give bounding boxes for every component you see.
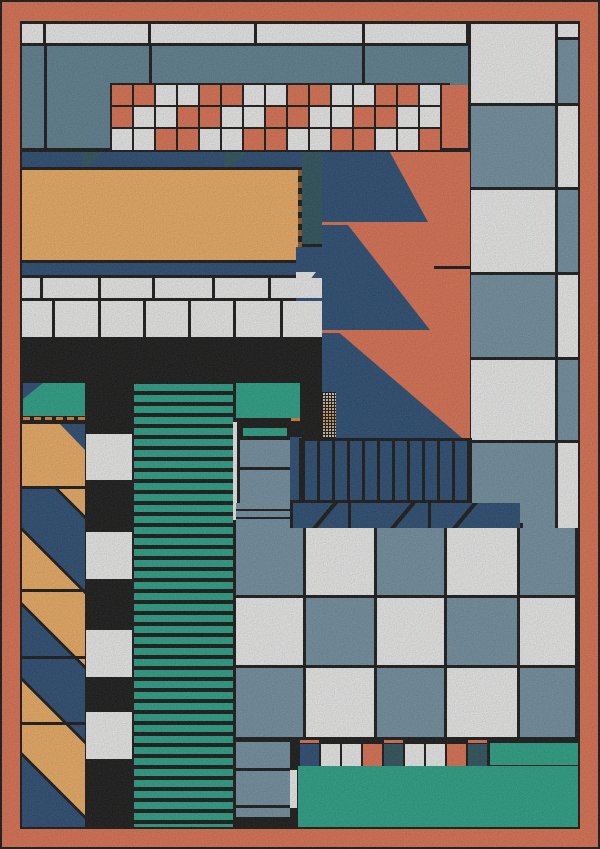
bottom-slate-rule xyxy=(236,805,290,808)
mosaic-grid-cell xyxy=(310,107,330,127)
white-row-a-cell xyxy=(22,278,40,298)
mosaic-grid-cell xyxy=(332,85,352,105)
rightcol-cap xyxy=(558,24,578,37)
mosaic-grid-cell xyxy=(266,129,286,150)
mosaic-grid-cell xyxy=(156,107,176,127)
top-slate-divider xyxy=(44,46,47,148)
slate-block xyxy=(240,440,290,467)
checkerboard-cell xyxy=(520,668,575,737)
mosaic-grid-cell xyxy=(200,129,220,150)
rightcol-white-c xyxy=(471,190,555,272)
mosaic-grid-cell xyxy=(398,129,418,150)
dteal-column xyxy=(302,152,322,244)
rightcol-white-e xyxy=(471,360,555,440)
orange-tick-row-cell xyxy=(67,417,74,420)
bottom-slate-rule xyxy=(236,768,290,771)
mosaic-grid-cell xyxy=(134,85,154,105)
mosaic-grid-cell xyxy=(288,85,308,105)
bottom-mini-row-cell xyxy=(300,744,319,766)
mosaic-grid-cell xyxy=(178,85,198,105)
checkerboard-cell xyxy=(377,528,444,595)
rightcol-strip-e xyxy=(558,360,578,440)
mosaic-grid-cell xyxy=(134,129,154,150)
white-row-a-cell xyxy=(155,278,212,298)
checkerboard-cell xyxy=(447,598,517,665)
mosaic-grid-cell xyxy=(288,107,308,127)
slash-left-rule xyxy=(236,517,290,519)
rightcol-strip-b xyxy=(558,106,578,187)
abstract-artwork xyxy=(0,0,600,849)
checkerboard-cell xyxy=(306,668,374,737)
rightcol-strip-a xyxy=(558,40,578,103)
white-row-b-cell xyxy=(101,301,143,337)
mosaic-grid-cell xyxy=(178,129,198,150)
white-row-b-cell xyxy=(22,301,52,337)
slash-right-slate xyxy=(523,503,555,528)
mosaic-grid-cell xyxy=(376,85,396,105)
mosaic-grid-cell xyxy=(200,85,220,105)
slash-left-rule xyxy=(236,509,290,511)
amber-panel xyxy=(22,170,298,260)
mosaic-grid-cell xyxy=(156,129,176,150)
checkerboard-cell xyxy=(306,598,374,665)
comb-band xyxy=(302,441,469,500)
mosaic-grid-cell xyxy=(156,85,176,105)
orange-tick-row-cell xyxy=(56,417,63,420)
top-white-row-cell xyxy=(22,24,43,43)
checkerboard-cell xyxy=(306,528,374,595)
mosaic-grid-cell xyxy=(244,85,264,105)
mosaic-grid-cell xyxy=(398,107,418,127)
rightcol-slate-b xyxy=(471,106,555,187)
mosaic-grid-cell xyxy=(398,85,418,105)
top-white-row-cell xyxy=(151,24,254,43)
navy-underline xyxy=(22,263,322,275)
top-white-row-cell xyxy=(365,24,466,43)
checkerboard-cell xyxy=(236,598,303,665)
bottom-mini-row-cell xyxy=(384,744,403,766)
top-white-row-cell xyxy=(257,24,362,43)
white-row-b-cell xyxy=(55,301,98,337)
mosaic-grid-cell xyxy=(310,85,330,105)
coral-tick xyxy=(300,740,319,743)
mosaic-grid-cell xyxy=(178,107,198,127)
checker-column-white xyxy=(86,434,132,480)
mosaic-grid-cell xyxy=(332,107,352,127)
checkerboard-cell xyxy=(236,528,303,595)
coral-tick xyxy=(468,740,487,743)
mosaic-grid-cell xyxy=(332,129,352,150)
orange-tick-row-cell xyxy=(45,417,52,420)
teal-stripe-column xyxy=(134,384,233,827)
slash-right-white xyxy=(558,503,578,528)
orange-tick-row-cell xyxy=(23,417,30,420)
checkerboard-cell xyxy=(236,668,303,737)
white-row-b-cell xyxy=(236,301,280,337)
mosaic-grid-cell xyxy=(288,129,308,150)
rightcol-strip-c xyxy=(558,190,578,272)
bottom-mini-row-cell xyxy=(321,744,340,766)
white-row-a-cell xyxy=(101,278,152,298)
mosaic-grid-cell xyxy=(134,107,154,127)
checker-column-white xyxy=(86,712,132,759)
mosaic-grid-cell xyxy=(266,107,286,127)
rightcol-slate-d xyxy=(471,275,555,357)
mosaic-grid-cell xyxy=(112,85,132,105)
bottom-mini-row-cell xyxy=(468,744,487,766)
slash-divider xyxy=(428,503,431,528)
mosaic-grid-cell xyxy=(112,129,132,150)
white-row-b-cell xyxy=(191,301,233,337)
mosaic-grid-cell xyxy=(222,85,242,105)
mosaic-grid-cell xyxy=(354,107,374,127)
checkerboard-cell xyxy=(520,598,575,665)
mosaic-grid-cell xyxy=(310,129,330,150)
checkerboard-cell xyxy=(447,668,517,737)
bottom-mini-row-cell xyxy=(405,744,424,766)
checker-column-white xyxy=(86,532,132,579)
coral-seam xyxy=(434,266,470,269)
orange-tick-row-cell xyxy=(34,417,41,420)
white-row-a-cell xyxy=(43,278,98,298)
mosaic-grid-cell xyxy=(222,107,242,127)
white-row-b-cell xyxy=(146,301,188,337)
navy-band xyxy=(22,152,322,167)
diag-rule xyxy=(22,722,85,725)
mosaic-grid-cell xyxy=(112,107,132,127)
rightcol-strip-d xyxy=(558,275,578,357)
mosaic-grid-cell xyxy=(266,85,286,105)
orange-tick-row-cell xyxy=(78,417,85,420)
bottom-mini-row-cell xyxy=(447,744,466,766)
slash-left-slate xyxy=(236,503,290,528)
black-band xyxy=(22,340,322,383)
orange-dash xyxy=(291,418,300,421)
checkerboard-cell xyxy=(520,528,575,595)
white-row-a-cell xyxy=(271,278,322,298)
mosaic-grid-cell xyxy=(354,85,374,105)
top-white-row-cell xyxy=(46,24,148,43)
mosaic-grid-cell xyxy=(376,107,396,127)
bottom-mini-row-cell xyxy=(363,744,382,766)
white-row-b-cell xyxy=(283,301,322,337)
rightcol-white-a xyxy=(471,24,555,103)
mosaic-grid-cell xyxy=(420,85,440,105)
slash-divider xyxy=(348,503,351,528)
teal-dash xyxy=(243,428,287,436)
mosaic-grid-cell xyxy=(200,107,220,127)
coral-tick xyxy=(384,740,403,743)
mosaic-grid-cell xyxy=(420,129,440,150)
checkerboard-cell xyxy=(377,668,444,737)
checkerboard-cell xyxy=(447,528,517,595)
diag-rule xyxy=(22,589,85,592)
mosaic-grid-cell xyxy=(354,129,374,150)
bottom-teal-field xyxy=(298,766,578,827)
mosaic-grid-cell xyxy=(376,129,396,150)
checker-column-white xyxy=(86,630,132,677)
bottom-teal-step xyxy=(490,743,578,765)
mosaic-grid-cell xyxy=(420,107,440,127)
bottom-white-sliver xyxy=(290,770,297,808)
white-row-a-cell xyxy=(215,278,268,298)
checkerboard-cell xyxy=(377,598,444,665)
bottom-mini-row-cell xyxy=(342,744,361,766)
dot-matrix xyxy=(322,392,336,441)
mosaic-grid-cell xyxy=(222,129,242,150)
bottom-mini-row-cell xyxy=(426,744,445,766)
teal-ledge xyxy=(236,383,300,418)
mosaic-grid-cell xyxy=(244,129,264,150)
mosaic-grid-cell xyxy=(244,107,264,127)
mosaic-coral-cap xyxy=(442,85,468,148)
diag-rule xyxy=(22,656,85,659)
